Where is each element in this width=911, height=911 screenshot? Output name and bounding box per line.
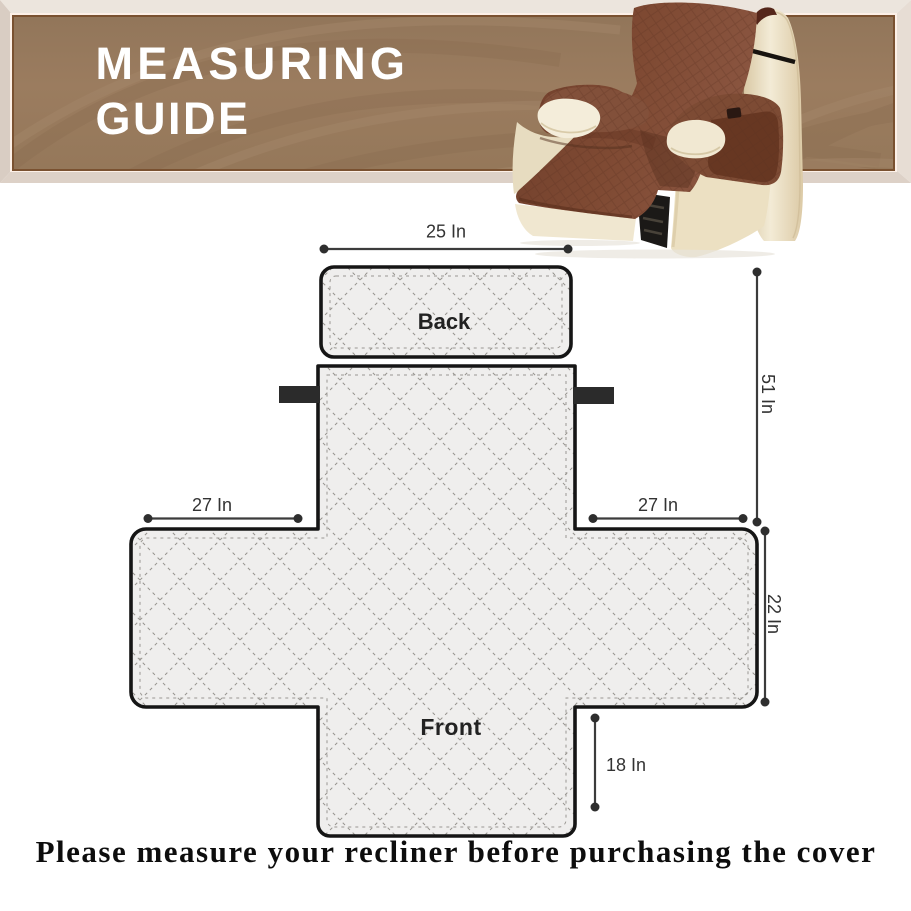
svg-text:MEASURING: MEASURING: [96, 38, 410, 89]
svg-text:27 In: 27 In: [638, 495, 678, 515]
svg-text:GUIDE: GUIDE: [96, 93, 251, 144]
svg-text:Please measure your recliner b: Please measure your recliner before purc…: [36, 834, 877, 869]
svg-text:22 In: 22 In: [764, 594, 784, 634]
svg-text:51 In: 51 In: [758, 374, 778, 414]
svg-text:18 In: 18 In: [606, 755, 646, 775]
svg-text:Front: Front: [420, 714, 481, 740]
svg-text:25 In: 25 In: [426, 222, 466, 242]
svg-text:Back: Back: [418, 309, 471, 334]
svg-text:27 In: 27 In: [192, 495, 232, 515]
